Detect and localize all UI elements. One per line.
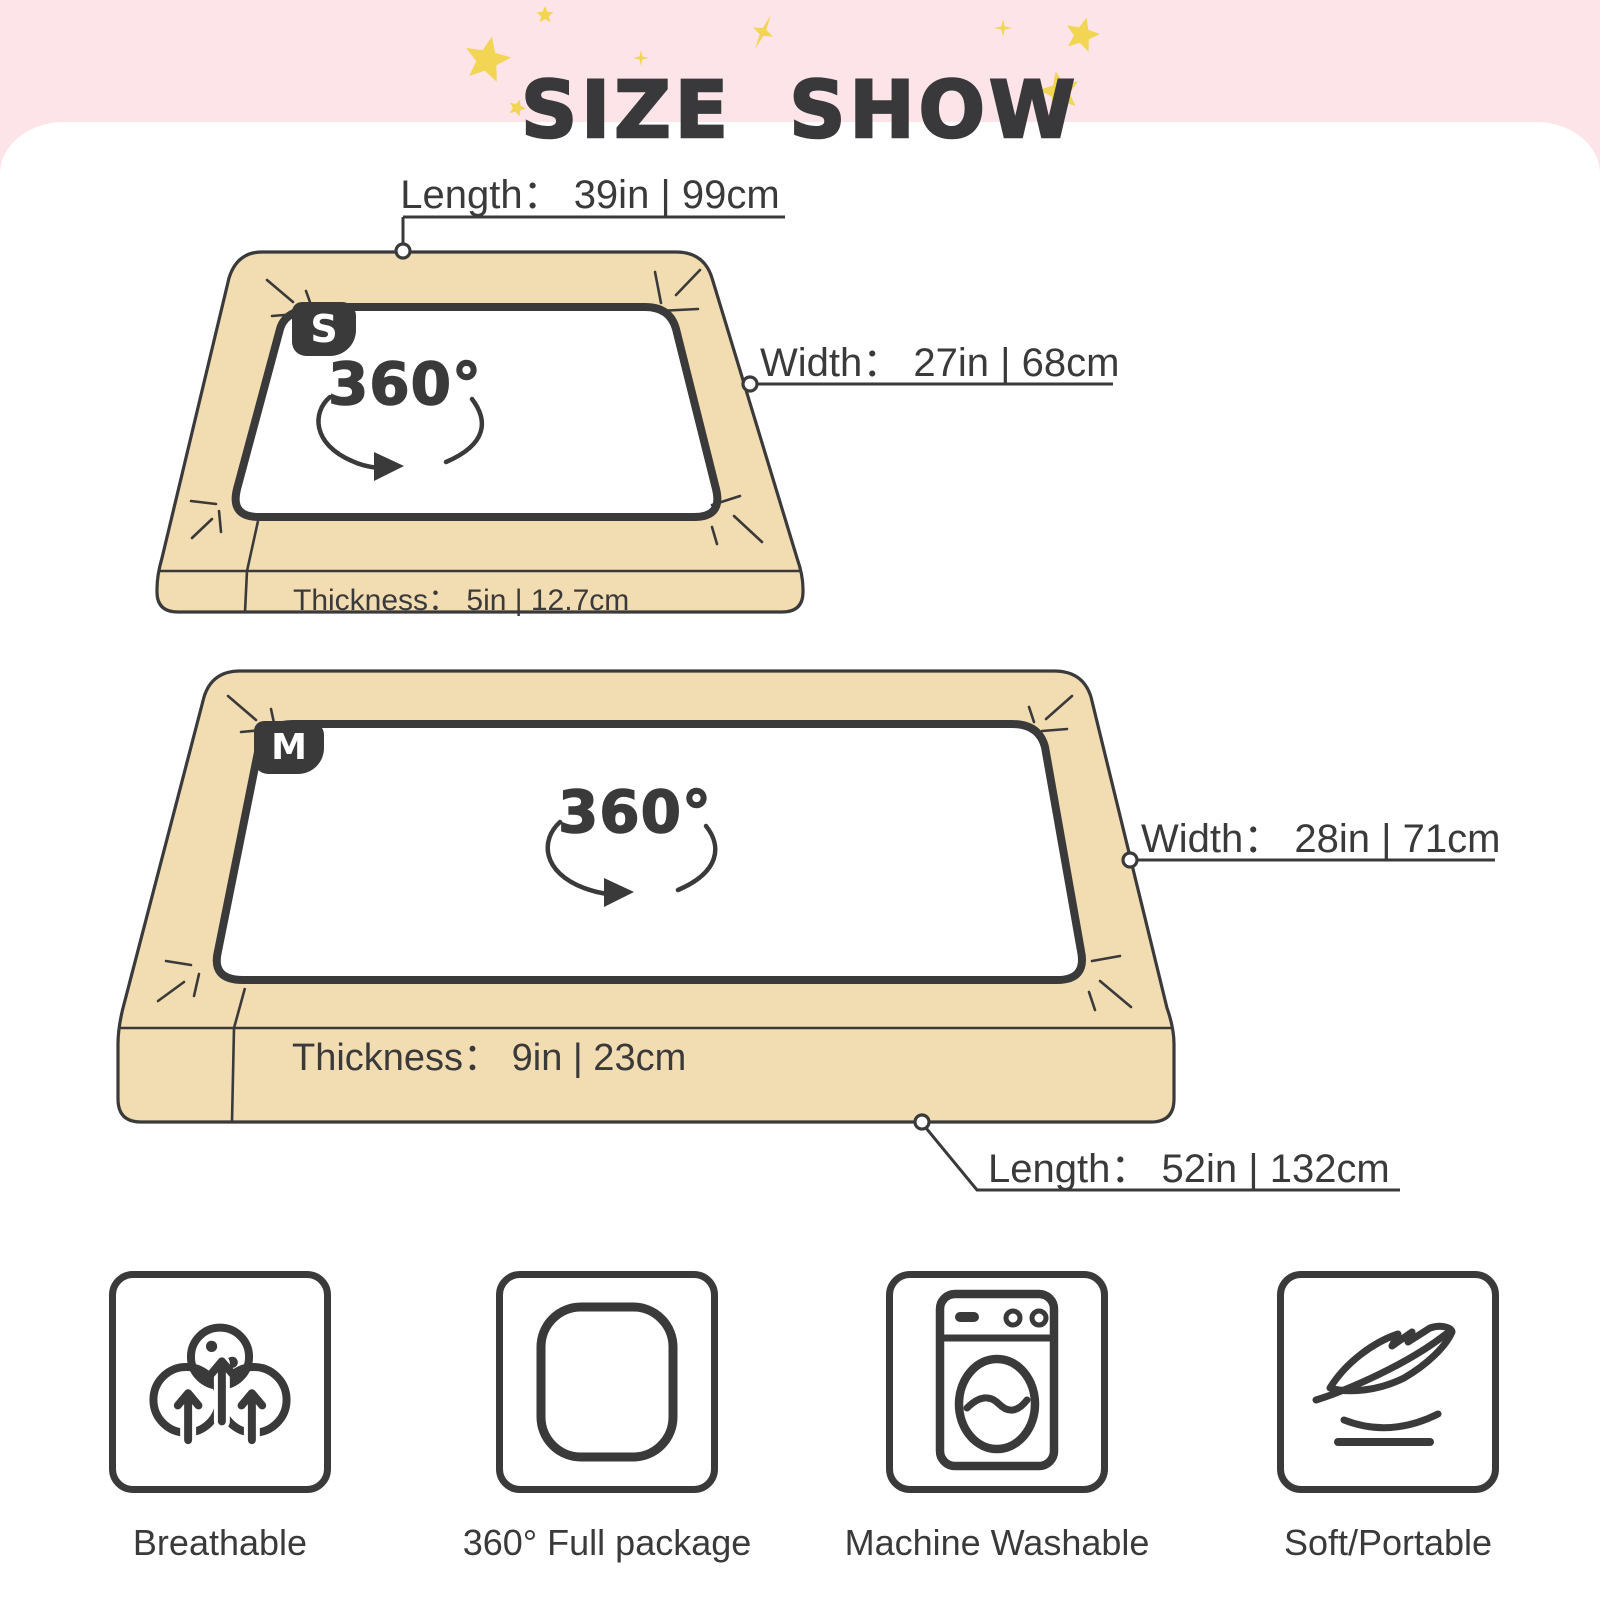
medium-bed-drawing (118, 671, 1495, 1190)
small-thickness-label: Thickness： 5in | 12.7cm (293, 575, 629, 619)
machine-washable-icon (927, 1287, 1067, 1477)
feature-box-soft-portable (1277, 1271, 1499, 1493)
medium-width-label: Width： 28in | 71cm (1141, 806, 1491, 864)
rotation-360-label: 360° (530, 778, 740, 846)
feature-box-breathable (109, 1271, 331, 1493)
size-m-badge: M (254, 721, 324, 774)
rotation-360-label: 360° (300, 350, 510, 418)
feature-box-full-package (496, 1271, 718, 1493)
feature-label-soft-portable: Soft/Portable (1193, 1522, 1583, 1564)
feature-box-machine-washable (886, 1271, 1108, 1493)
feature-label-full-package: 360° Full package (412, 1522, 802, 1564)
breathable-icon (145, 1307, 295, 1457)
medium-thickness-label: Thickness： 9in | 23cm (292, 1036, 686, 1080)
feature-label-machine-washable: Machine Washable (802, 1522, 1192, 1564)
small-width-label: Width： 27in | 68cm (760, 330, 1110, 388)
medium-length-label: Length： 52in | 132cm (988, 1136, 1388, 1194)
small-length-label: Length： 39in | 99cm (395, 162, 785, 220)
size-s-badge: S (292, 302, 356, 356)
size-show-infographic: SIZE SHOW (0, 0, 1600, 1600)
feature-label-breathable: Breathable (25, 1522, 415, 1564)
full-package-icon (532, 1302, 682, 1462)
feather-icon (1308, 1307, 1468, 1457)
